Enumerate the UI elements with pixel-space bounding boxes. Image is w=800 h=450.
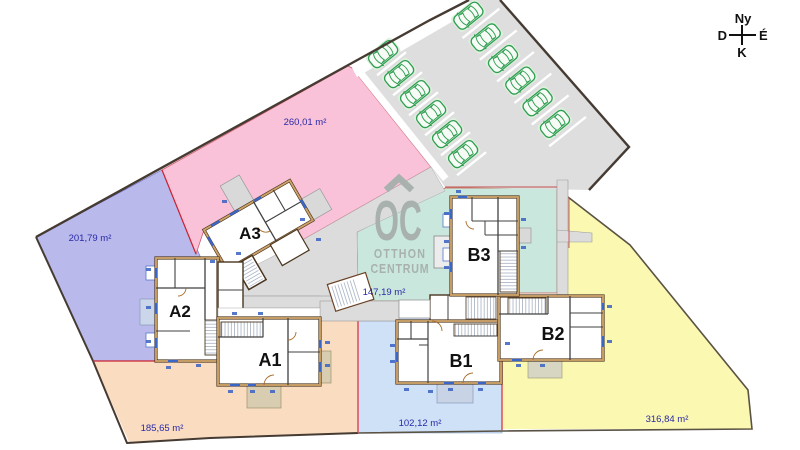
svg-text:B3: B3 (467, 245, 490, 265)
svg-text:OTTHON: OTTHON (374, 246, 426, 261)
svg-text:260,01 m²: 260,01 m² (284, 117, 327, 128)
svg-text:B1: B1 (449, 351, 472, 371)
svg-text:OC: OC (374, 188, 422, 252)
svg-text:A3: A3 (239, 224, 261, 243)
svg-text:D: D (718, 28, 727, 43)
svg-text:A2: A2 (169, 302, 191, 321)
svg-text:B2: B2 (541, 324, 564, 344)
svg-text:316,84 m²: 316,84 m² (646, 414, 689, 425)
svg-text:K: K (737, 45, 747, 60)
svg-text:102,12 m²: 102,12 m² (399, 418, 442, 429)
svg-text:É: É (759, 28, 768, 43)
svg-text:185,65 m²: 185,65 m² (141, 423, 184, 434)
svg-text:Ny: Ny (735, 11, 752, 26)
svg-text:201,79 m²: 201,79 m² (69, 233, 112, 244)
svg-text:147,19 m²: 147,19 m² (363, 287, 406, 298)
svg-text:CENTRUM: CENTRUM (371, 261, 430, 276)
svg-text:A1: A1 (258, 350, 281, 370)
